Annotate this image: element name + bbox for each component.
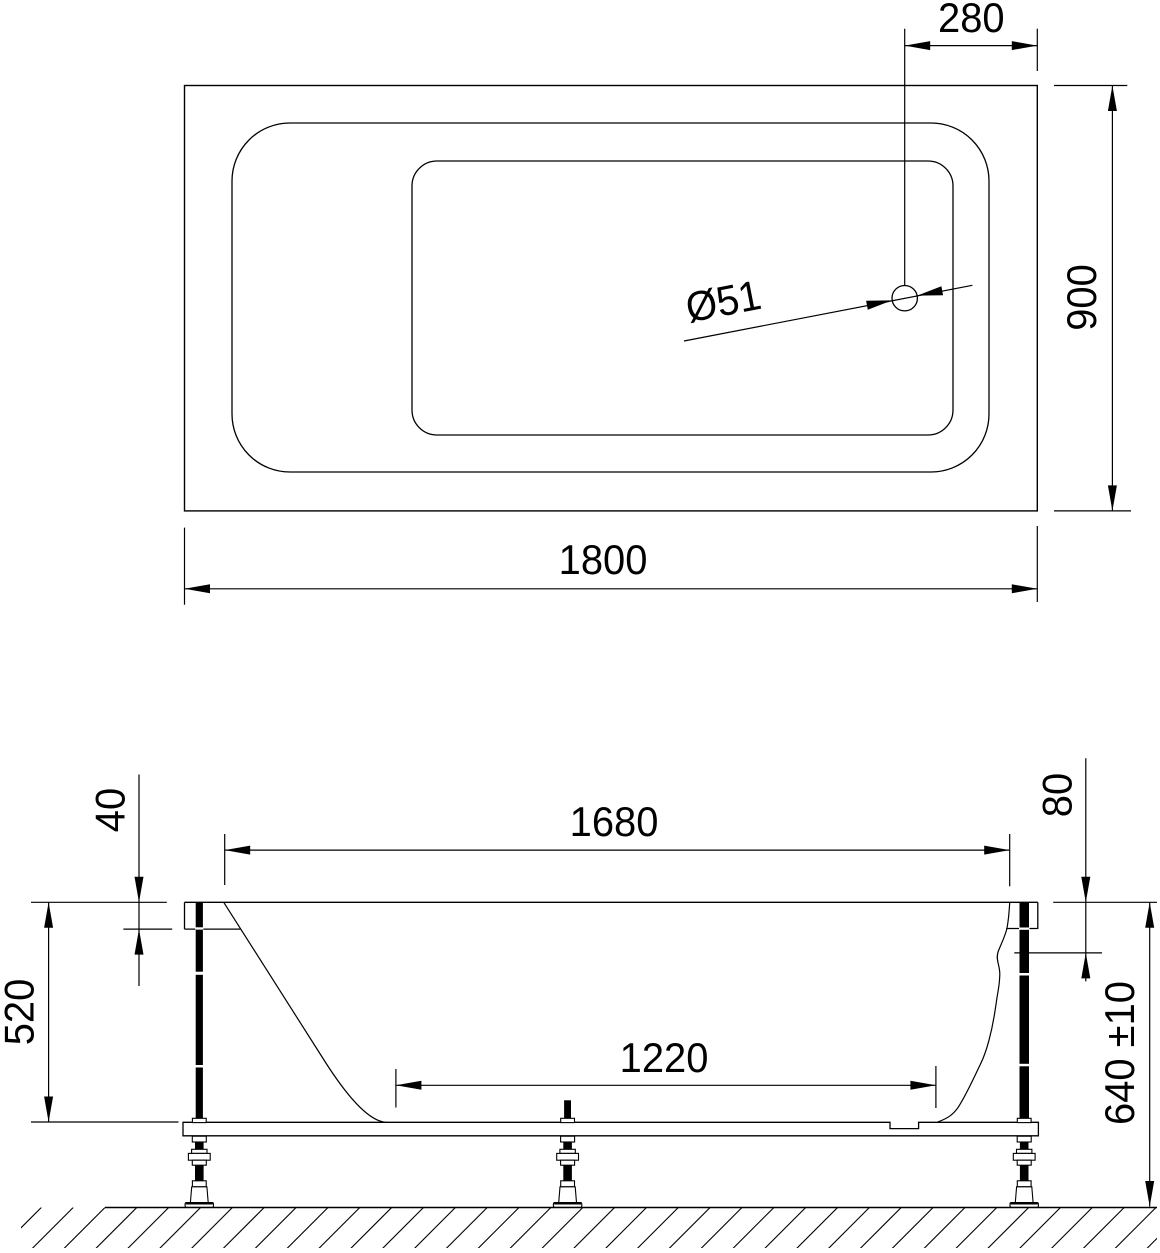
- svg-text:80: 80: [1034, 773, 1081, 817]
- svg-text:640 ±10: 640 ±10: [1096, 981, 1143, 1125]
- svg-text:900: 900: [1058, 264, 1105, 331]
- svg-text:1680: 1680: [570, 798, 659, 845]
- svg-text:280: 280: [938, 0, 1005, 41]
- svg-text:520: 520: [0, 979, 43, 1046]
- svg-text:40: 40: [87, 788, 134, 832]
- svg-text:1220: 1220: [620, 1034, 709, 1081]
- svg-text:1800: 1800: [559, 536, 648, 583]
